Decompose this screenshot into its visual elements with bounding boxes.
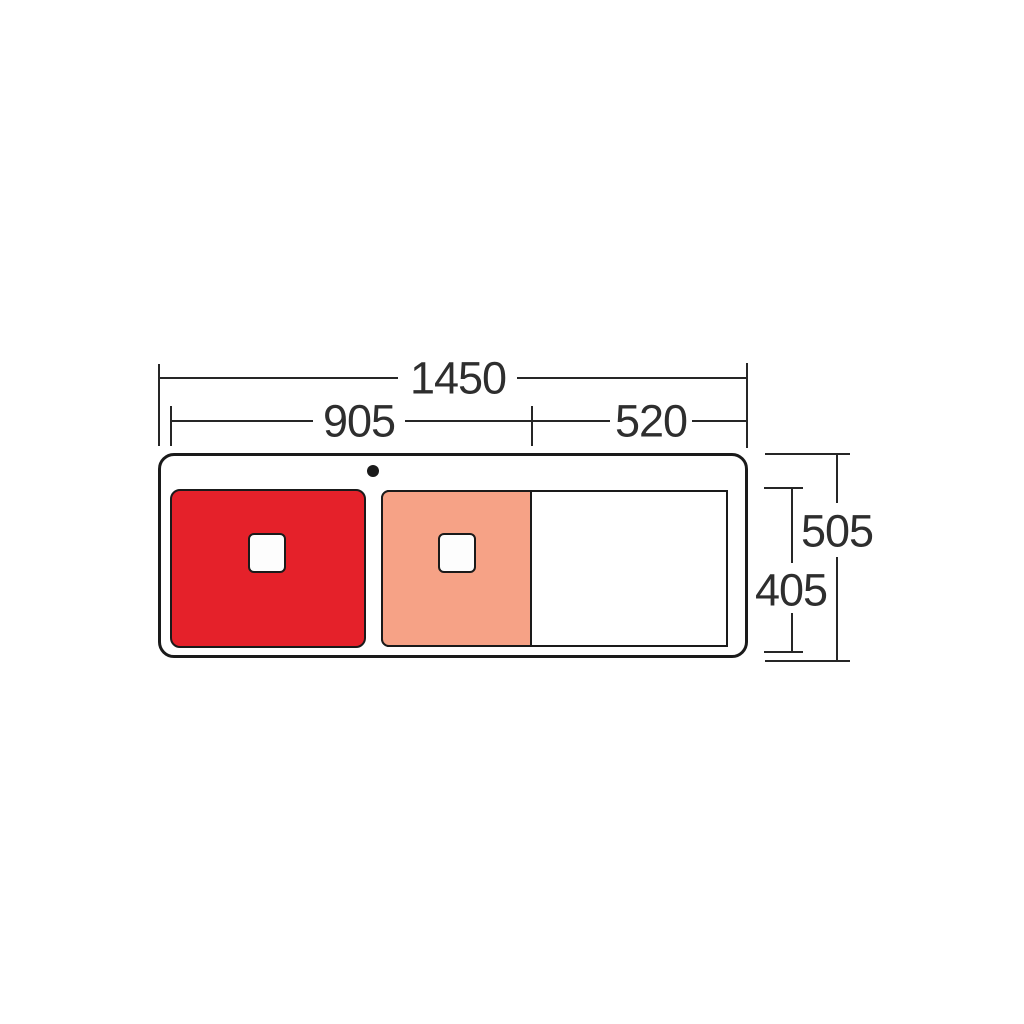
dim-line-overall-depth-bottom-segment [836,557,838,661]
dim-extension-right-overall-width [746,363,748,448]
dim-label-bowls-width: 905 [323,399,395,444]
dim-label-overall-depth: 505 [801,509,873,554]
dim-extension-mid-divider [531,406,533,446]
dim-label-overall-width: 1450 [410,356,506,401]
half-bowl-waste-icon [438,533,476,573]
main-bowl-waste-icon [248,533,286,573]
dim-line-overall-width-right-segment [517,377,747,379]
sink-dimension-diagram: 1450 905 520 505 405 [0,0,1024,1024]
dim-line-overall-depth-top-segment [836,454,838,503]
dim-line-bowls-width-right-segment [405,420,532,422]
dim-extension-left-bowls-width [170,406,172,446]
dim-line-bowls-width-left-segment [171,420,313,422]
dim-line-drainer-width-right-segment [692,420,747,422]
dim-label-bowl-depth: 405 [755,568,827,613]
dim-extension-bottom-bowl-depth [764,651,803,653]
dim-line-drainer-width-left-segment [533,420,610,422]
dim-line-bowl-depth-top-segment [791,488,793,563]
dim-line-overall-width-left-segment [160,377,398,379]
tap-hole-icon [367,465,379,477]
dim-line-bowl-depth-bottom-segment [791,613,793,652]
dim-extension-top-bowl-depth [764,487,803,489]
dim-label-drainer-width: 520 [615,399,687,444]
